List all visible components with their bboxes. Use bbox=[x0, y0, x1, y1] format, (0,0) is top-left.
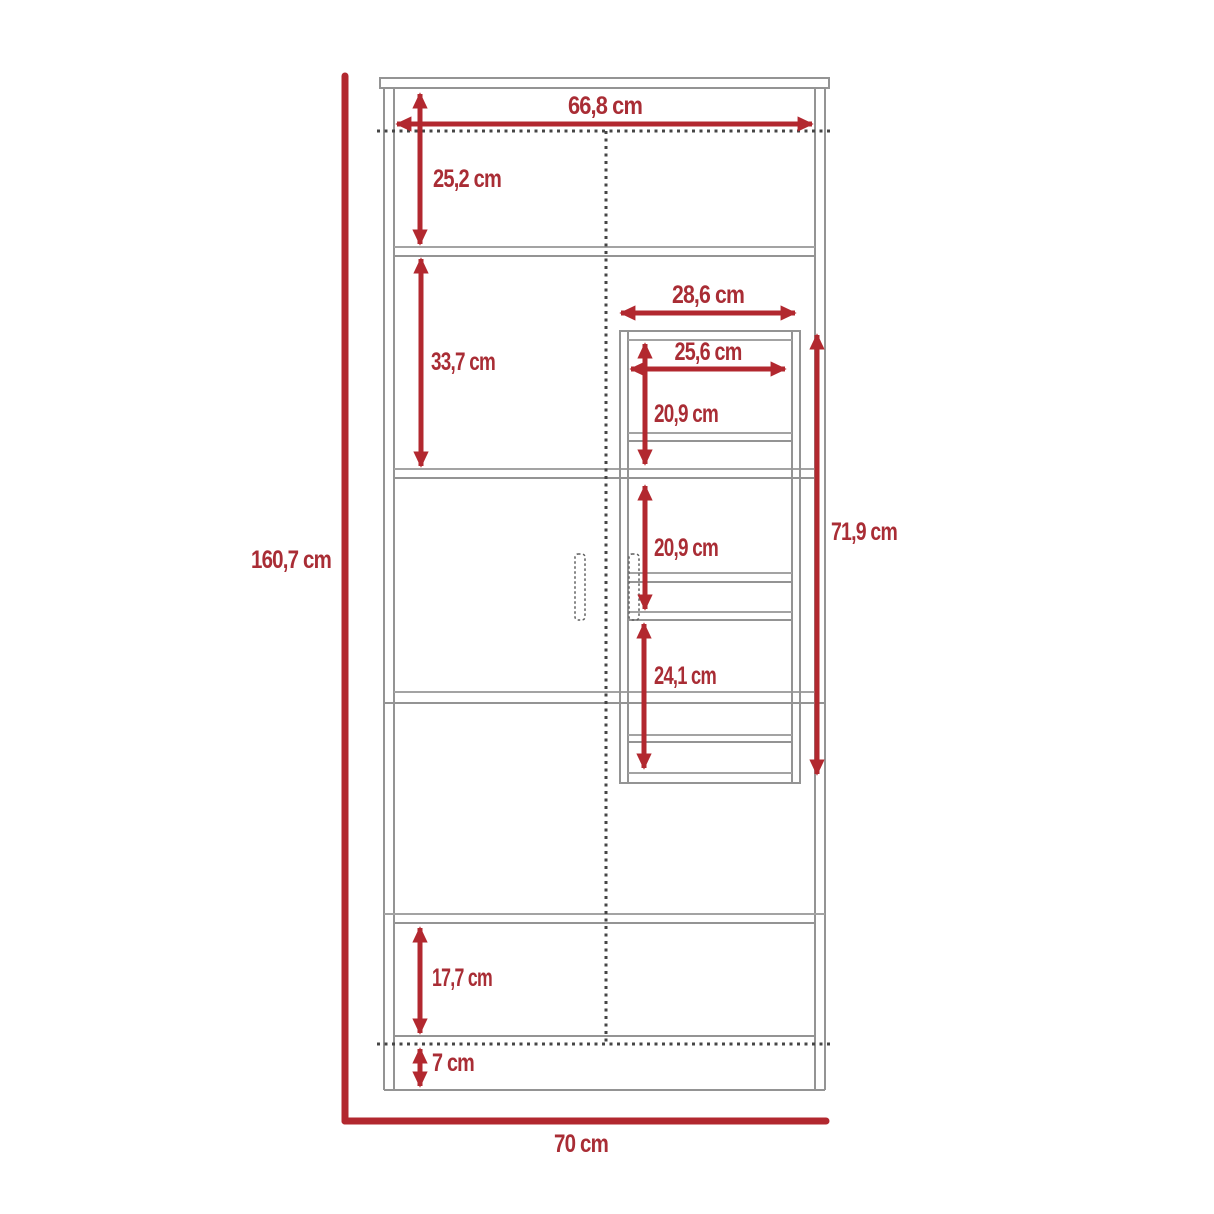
dimension-shelf-unit-width: 28,6 cm bbox=[621, 281, 795, 313]
drawer-section-height-label: 17,7 cm bbox=[432, 964, 492, 992]
dimension-top-section-height: 25,2 cm bbox=[420, 94, 501, 244]
base-height-label: 7 cm bbox=[432, 1049, 474, 1077]
total-width-label: 70 cm bbox=[554, 1130, 608, 1158]
dimension-shelf-unit-total-height: 71,9 cm bbox=[817, 335, 897, 774]
dimension-inner-width: 66,8 cm bbox=[397, 92, 812, 124]
dimension-base-height: 7 cm bbox=[420, 1049, 474, 1086]
shelf-unit-width-label: 28,6 cm bbox=[672, 281, 744, 309]
dimension-shelf-unit-inner-width: 25,6 cm bbox=[631, 338, 785, 369]
shelf-unit-total-height-label: 71,9 cm bbox=[831, 518, 897, 546]
total-height-label: 160,7 cm bbox=[251, 546, 331, 574]
dimension-shelf-unit-middle-height: 20,9 cm bbox=[645, 486, 718, 609]
door-handles bbox=[575, 554, 639, 620]
dimension-total-height: 160,7 cm bbox=[251, 76, 345, 1121]
top-section-height-label: 25,2 cm bbox=[433, 165, 501, 193]
shelf-unit-top-height-label: 20,9 cm bbox=[654, 400, 718, 428]
dimension-diagram-page: 66,8 cm 25,2 cm 33,7 cm 28,6 cm 25,6 cm … bbox=[0, 0, 1214, 1214]
shelf-unit-inner-width-label: 25,6 cm bbox=[675, 338, 742, 366]
shelf-unit-bottom-height-label: 24,1 cm bbox=[654, 662, 716, 690]
shelf-unit-middle-height-label: 20,9 cm bbox=[654, 534, 718, 562]
inner-width-label: 66,8 cm bbox=[568, 92, 642, 120]
reference-lines bbox=[377, 131, 833, 1044]
right-door-handle bbox=[629, 554, 639, 620]
left-door-handle bbox=[575, 554, 585, 620]
cabinet-dimension-diagram: 66,8 cm 25,2 cm 33,7 cm 28,6 cm 25,6 cm … bbox=[0, 0, 1214, 1214]
dimension-shelf-unit-bottom-height: 24,1 cm bbox=[644, 624, 716, 768]
top-board bbox=[380, 78, 829, 88]
dimension-total-width: 70 cm bbox=[345, 1121, 826, 1158]
dimension-upper-section-height: 33,7 cm bbox=[421, 259, 495, 466]
dimension-drawer-section-height: 17,7 cm bbox=[420, 928, 492, 1033]
upper-section-height-label: 33,7 cm bbox=[431, 348, 495, 376]
